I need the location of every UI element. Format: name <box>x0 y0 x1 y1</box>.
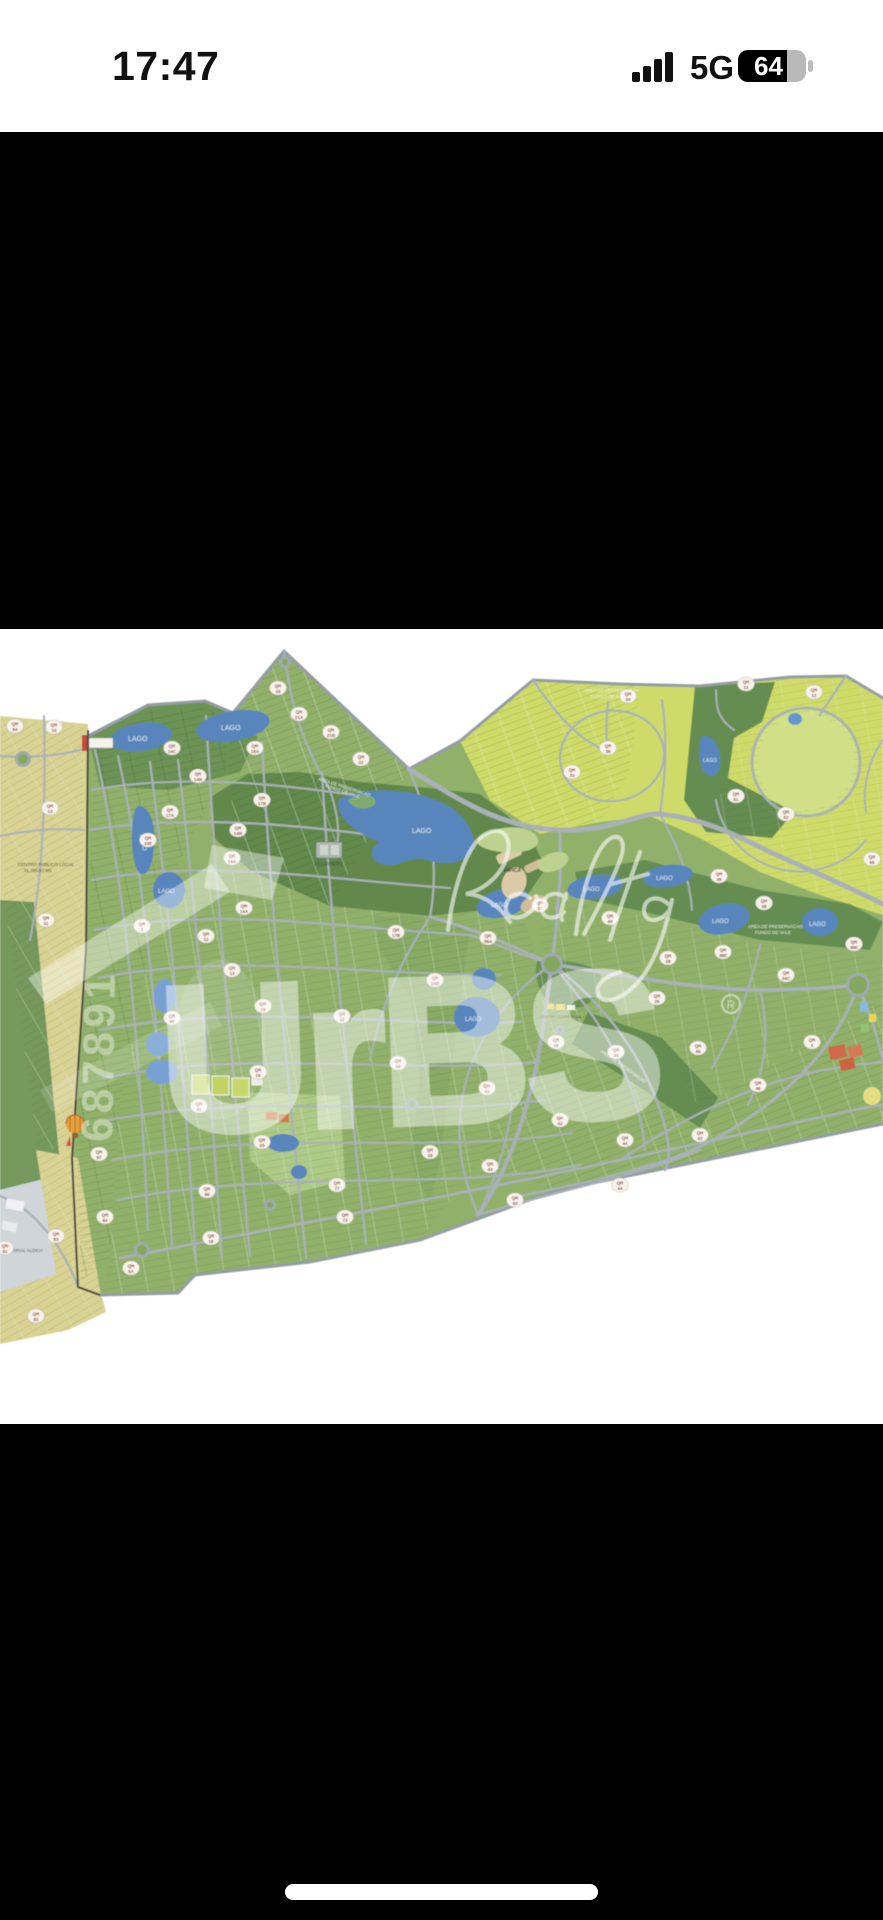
svg-text:687891: 687891 <box>73 971 125 1143</box>
svg-text:5G: 5G <box>690 49 734 86</box>
svg-text:64: 64 <box>754 51 783 81</box>
svg-text:R: R <box>727 998 736 1012</box>
svg-text:17:47: 17:47 <box>112 43 219 89</box>
svg-text:UrBS: UrBS <box>156 928 663 1175</box>
